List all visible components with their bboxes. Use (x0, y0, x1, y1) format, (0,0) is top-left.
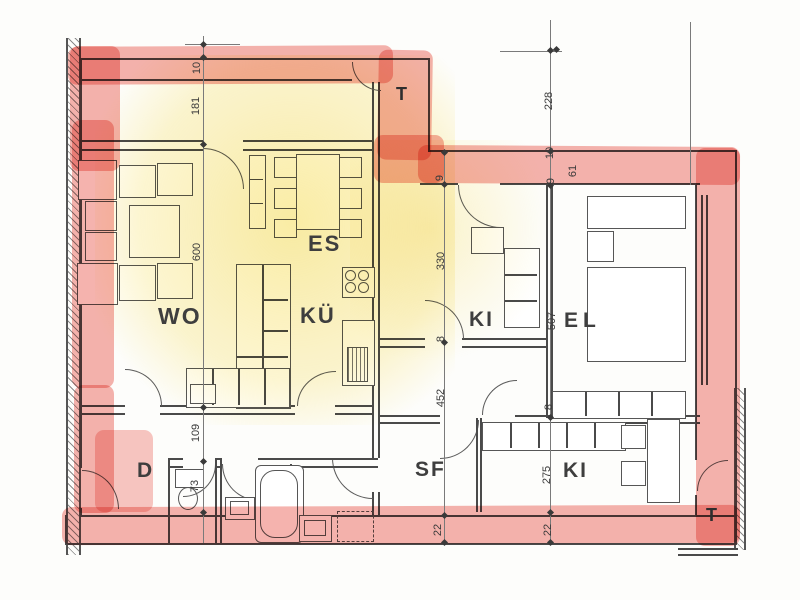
wardrobe-divider (594, 423, 596, 448)
dim-label: 22 (432, 524, 444, 536)
double-bed (587, 267, 686, 362)
dim-label: 22 (542, 524, 554, 536)
dim-label: 9 (545, 178, 557, 184)
floor-plan: 10 181 600 109 73 9 330 8 452 22 228 10 … (0, 0, 800, 600)
room-label-terrace-top: T (396, 84, 409, 105)
wardrobe-divider (651, 392, 653, 416)
bottom-right-railing-2 (678, 554, 738, 556)
dim-label: 275 (541, 466, 553, 484)
dim-ext-line-far-right (690, 22, 691, 185)
door-arc-kueche (297, 371, 336, 406)
dim-label: 109 (190, 424, 202, 442)
door-arc-wo-terrace (203, 148, 244, 189)
wall-highlight-bottom (62, 505, 740, 545)
dining-chair (339, 219, 362, 238)
dining-chair (274, 157, 297, 178)
wardrobe-divider (538, 423, 540, 448)
wall-rooms-front-a (168, 458, 183, 468)
wardrobe-divider (566, 423, 568, 448)
shelf-divider (505, 274, 537, 276)
dim-ext-top-left (185, 44, 240, 45)
sideboard-shelf-line (250, 203, 263, 204)
dining-chair (274, 219, 297, 238)
wardrobe-divider (510, 423, 512, 448)
dim-label: 10 (191, 62, 203, 74)
bottom-right-railing (678, 548, 738, 550)
burner (345, 270, 356, 281)
nightstand (587, 231, 614, 262)
counter-divider (264, 369, 266, 405)
dining-chair (274, 188, 297, 209)
room-label-sf: SF (415, 458, 446, 482)
dim-label: 228 (543, 92, 555, 110)
room-label-kue: KÜ (300, 303, 336, 329)
door-arc-ki-bottom (482, 380, 517, 415)
room-label-diele: D (137, 459, 154, 483)
dining-table (296, 154, 340, 230)
dim-label: 600 (191, 243, 203, 261)
wall-highlight-right (696, 148, 740, 546)
room-label-ki-bottom: KI (563, 459, 588, 483)
dining-chair (339, 188, 362, 209)
wall-sf-top-a (378, 415, 440, 424)
door-arc-wo (125, 369, 162, 406)
armchair (157, 263, 193, 299)
door-arc-el (458, 185, 501, 228)
chair (621, 461, 646, 486)
wall-highlight-left (72, 120, 114, 388)
dim-label: 61 (567, 165, 579, 177)
armchair (119, 165, 156, 198)
wardrobe-divider (585, 392, 587, 416)
pantry-shelf (263, 330, 288, 332)
room-label-wo: WO (158, 303, 202, 330)
wall-rightwing-top-inner-a (420, 183, 458, 185)
burner (358, 282, 369, 293)
desk (647, 419, 680, 503)
room-label-terrace-bottom: T (706, 505, 719, 526)
room-label-ki-top: KI (469, 308, 494, 332)
door-arc-bath (222, 464, 259, 501)
wall-ki-top-bottom-b (462, 338, 546, 348)
armchair (157, 163, 193, 196)
sideboard (249, 155, 266, 229)
chair (621, 425, 646, 449)
sink-hatch (347, 347, 368, 382)
wardrobe-divider (618, 392, 620, 416)
dining-chair (339, 157, 362, 178)
wall-wo-facade-b (243, 140, 372, 151)
burner (358, 270, 369, 281)
dim-label: 10 (544, 147, 556, 159)
wardrobe-row (482, 422, 626, 451)
dim-label: 330 (435, 252, 447, 270)
dim-label: 452 (435, 389, 447, 407)
wall-highlight-rightwing-top (418, 145, 740, 185)
room-label-el: EL (564, 309, 601, 333)
shelf-column (504, 248, 540, 328)
room-label-es: ES (308, 231, 341, 257)
wall-ki-top-bottom-a (378, 338, 425, 348)
pantry-shelf (263, 299, 288, 301)
dim-label: 73 (189, 480, 201, 492)
coffee-table (129, 205, 180, 258)
dim-label: 8 (435, 336, 447, 342)
dim-label: 9 (434, 175, 446, 181)
dim-line-mid (444, 150, 445, 543)
pantry-shelf (237, 356, 288, 358)
headboard-shelf (587, 196, 686, 229)
burner (345, 282, 356, 293)
shelf-divider (505, 300, 537, 302)
counter-divider (238, 369, 240, 405)
sideboard-shelf-line (250, 179, 263, 180)
dim-label: 507 (546, 312, 558, 330)
dim-line-left (203, 36, 204, 543)
armchair (119, 265, 156, 301)
desk (471, 227, 504, 254)
dim-label: 181 (190, 97, 202, 115)
dim-label: 8 (543, 404, 555, 410)
door-arc-sf (440, 420, 479, 459)
wall-corridor-top-c (335, 405, 372, 415)
